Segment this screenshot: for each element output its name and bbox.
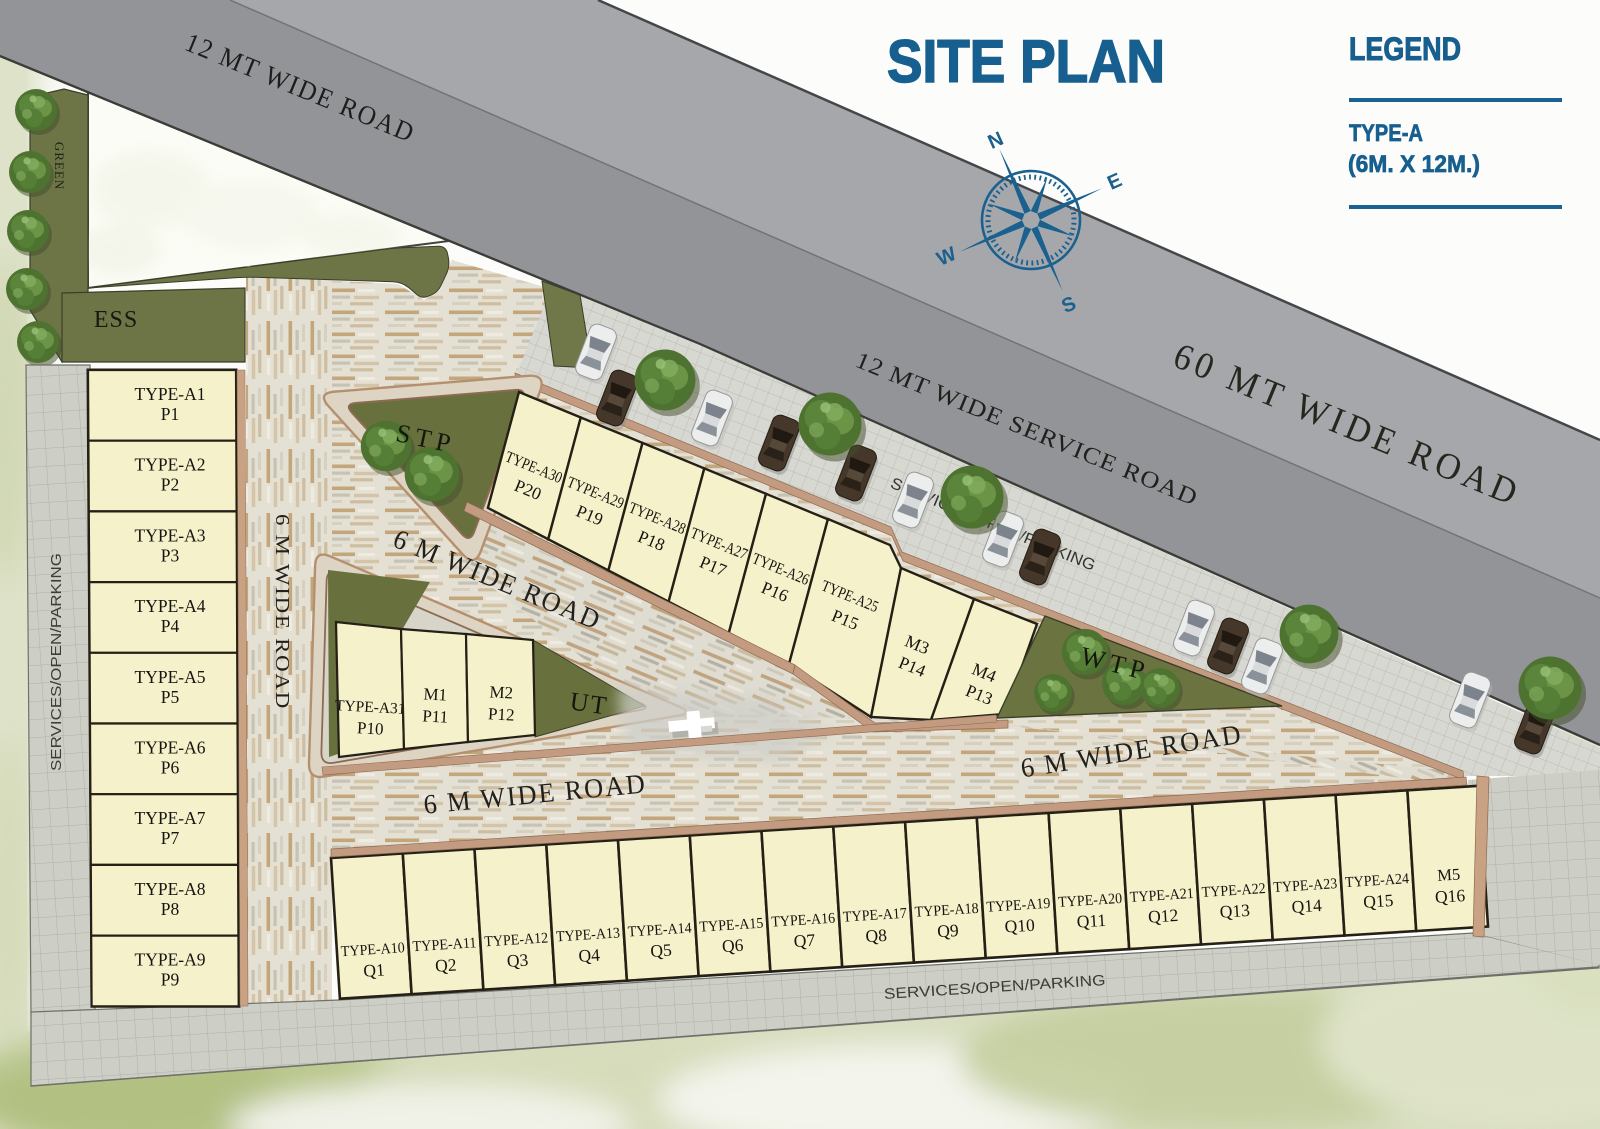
svg-text:P9: P9 bbox=[161, 970, 180, 990]
svg-text:M5: M5 bbox=[1437, 865, 1461, 885]
svg-text:P3: P3 bbox=[161, 545, 180, 565]
svg-text:TYPE-A5: TYPE-A5 bbox=[135, 667, 206, 687]
svg-text:P12: P12 bbox=[488, 704, 515, 724]
svg-text:P7: P7 bbox=[161, 828, 180, 848]
svg-text:P2: P2 bbox=[161, 475, 179, 495]
svg-text:P11: P11 bbox=[422, 706, 449, 726]
svg-text:Q8: Q8 bbox=[865, 925, 888, 946]
svg-text:TYPE-A8: TYPE-A8 bbox=[135, 879, 206, 899]
svg-text:Q15: Q15 bbox=[1363, 890, 1395, 912]
svg-text:TYPE-A2: TYPE-A2 bbox=[135, 455, 206, 475]
svg-text:Q9: Q9 bbox=[937, 920, 960, 941]
svg-text:TYPE-A6: TYPE-A6 bbox=[135, 738, 206, 758]
svg-text:UT: UT bbox=[568, 687, 610, 721]
svg-text:Q6: Q6 bbox=[721, 935, 744, 956]
svg-text:TYPE-A: TYPE-A bbox=[1349, 120, 1423, 147]
svg-text:P4: P4 bbox=[161, 616, 180, 636]
svg-text:Q16: Q16 bbox=[1434, 885, 1466, 907]
svg-text:SITE PLAN: SITE PLAN bbox=[887, 28, 1165, 95]
svg-text:Q5: Q5 bbox=[650, 940, 673, 961]
svg-text:TYPE-A9: TYPE-A9 bbox=[135, 950, 206, 970]
svg-text:Q1: Q1 bbox=[363, 959, 386, 980]
svg-text:M1: M1 bbox=[423, 684, 448, 704]
svg-text:Q11: Q11 bbox=[1076, 910, 1107, 932]
svg-text:P1: P1 bbox=[161, 404, 179, 424]
svg-text:P8: P8 bbox=[161, 899, 180, 919]
svg-text:ESS: ESS bbox=[94, 307, 138, 333]
svg-text:Q13: Q13 bbox=[1219, 900, 1251, 922]
svg-text:Q2: Q2 bbox=[435, 954, 458, 975]
svg-text:Q12: Q12 bbox=[1147, 905, 1178, 927]
svg-text:P5: P5 bbox=[161, 687, 180, 707]
svg-text:6 M WIDE ROAD: 6 M WIDE ROAD bbox=[271, 514, 292, 710]
svg-text:(6M. X 12M.): (6M. X 12M.) bbox=[1348, 151, 1480, 178]
svg-text:LEGEND: LEGEND bbox=[1349, 31, 1461, 67]
svg-text:Q4: Q4 bbox=[578, 945, 601, 966]
svg-text:SERVICES/OPEN/PARKING: SERVICES/OPEN/PARKING bbox=[49, 553, 65, 771]
svg-text:P10: P10 bbox=[357, 718, 384, 738]
svg-text:Q7: Q7 bbox=[793, 930, 816, 951]
svg-text:GREEN: GREEN bbox=[52, 142, 67, 190]
svg-text:TYPE-A7: TYPE-A7 bbox=[135, 808, 206, 828]
svg-text:Q3: Q3 bbox=[506, 950, 529, 971]
svg-text:TYPE-A1: TYPE-A1 bbox=[135, 384, 206, 404]
svg-text:TYPE-A3: TYPE-A3 bbox=[135, 525, 206, 545]
svg-text:M2: M2 bbox=[489, 682, 514, 702]
svg-text:Q10: Q10 bbox=[1004, 915, 1036, 937]
svg-text:Q14: Q14 bbox=[1291, 895, 1323, 917]
svg-text:P6: P6 bbox=[161, 758, 180, 778]
svg-text:TYPE-A4: TYPE-A4 bbox=[135, 596, 206, 616]
